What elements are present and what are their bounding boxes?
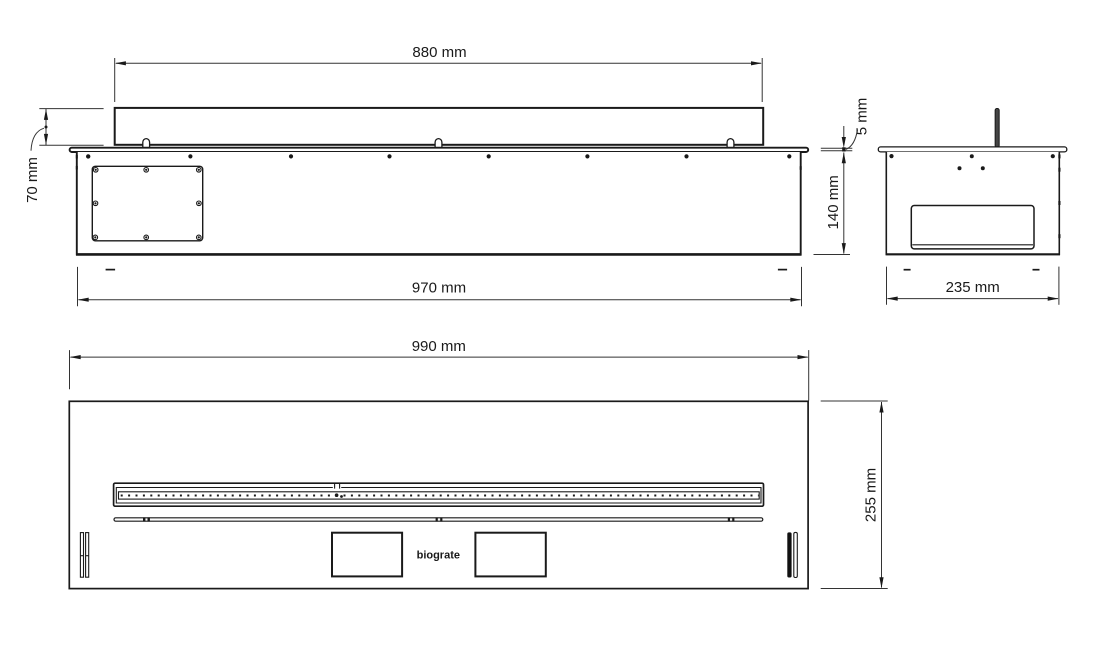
svg-text:70 mm: 70 mm <box>24 157 41 203</box>
svg-text:255 mm: 255 mm <box>862 468 879 522</box>
svg-text:140 mm: 140 mm <box>825 175 842 229</box>
svg-text:235 mm: 235 mm <box>946 279 1000 296</box>
svg-text:880 mm: 880 mm <box>412 44 466 61</box>
svg-text:990 mm: 990 mm <box>412 338 466 355</box>
svg-text:970 mm: 970 mm <box>412 279 466 296</box>
svg-text:5 mm: 5 mm <box>854 98 871 136</box>
svg-text:biograte: biograte <box>417 550 460 562</box>
